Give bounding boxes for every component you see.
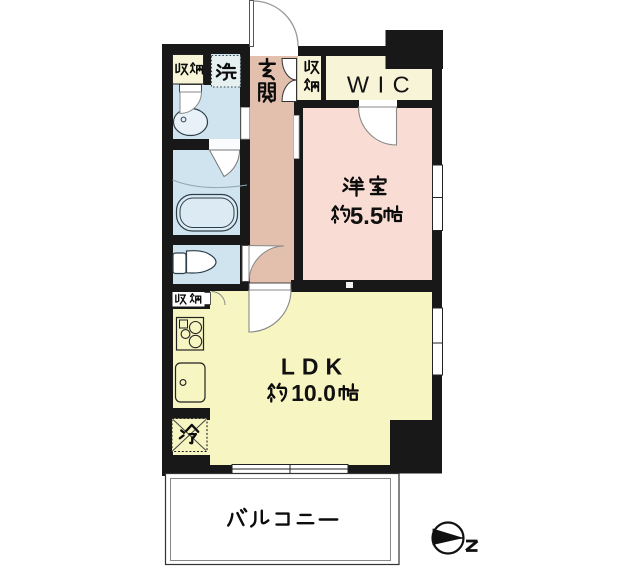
svg-text:5.5: 5.5 <box>350 203 383 230</box>
svg-text:10.0: 10.0 <box>291 380 336 406</box>
svg-text:LDK: LDK <box>281 354 349 380</box>
svg-text:WIC: WIC <box>347 72 418 98</box>
